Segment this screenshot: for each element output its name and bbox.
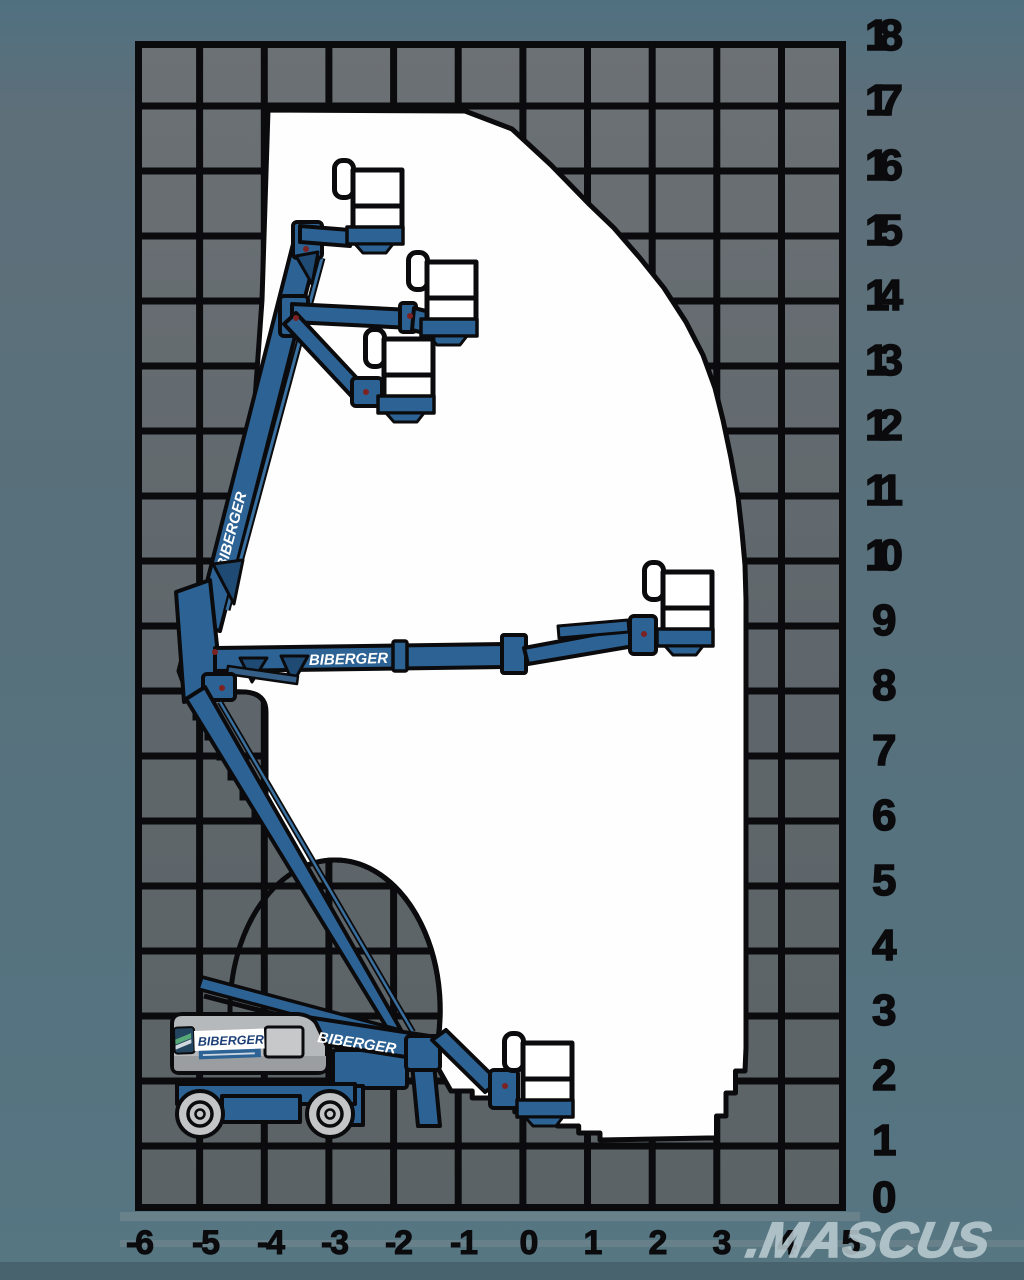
svg-text:15: 15 — [865, 206, 903, 255]
svg-text:17: 17 — [865, 76, 903, 125]
svg-text:BIBERGER: BIBERGER — [198, 1033, 264, 1049]
svg-text:3: 3 — [713, 1224, 732, 1262]
svg-text:-1: -1 — [450, 1224, 478, 1262]
svg-text:8: 8 — [872, 661, 896, 710]
svg-text:3: 3 — [872, 986, 896, 1035]
svg-text:10: 10 — [865, 531, 903, 580]
svg-text:-2: -2 — [385, 1224, 413, 1262]
svg-text:16: 16 — [865, 141, 903, 190]
svg-text:4: 4 — [872, 921, 897, 970]
svg-text:2: 2 — [872, 1051, 896, 1100]
svg-text:-5: -5 — [192, 1224, 220, 1262]
svg-text:-4: -4 — [257, 1224, 285, 1262]
svg-text:7: 7 — [872, 726, 896, 775]
svg-text:18: 18 — [865, 11, 903, 60]
svg-text:9: 9 — [872, 596, 896, 645]
svg-text:11: 11 — [865, 466, 903, 515]
svg-text:6: 6 — [872, 791, 896, 840]
svg-text:.MASCUS: .MASCUS — [742, 1211, 995, 1268]
svg-text:1: 1 — [872, 1116, 896, 1165]
svg-text:13: 13 — [865, 336, 903, 385]
svg-text:1: 1 — [584, 1224, 603, 1262]
svg-text:-6: -6 — [126, 1224, 154, 1262]
svg-text:5: 5 — [872, 856, 896, 905]
svg-text:14: 14 — [865, 271, 904, 320]
svg-text:12: 12 — [865, 401, 903, 450]
svg-text:0: 0 — [520, 1224, 539, 1262]
svg-text:-3: -3 — [321, 1224, 349, 1262]
svg-text:BIBERGER: BIBERGER — [309, 650, 389, 669]
svg-text:2: 2 — [649, 1224, 668, 1262]
